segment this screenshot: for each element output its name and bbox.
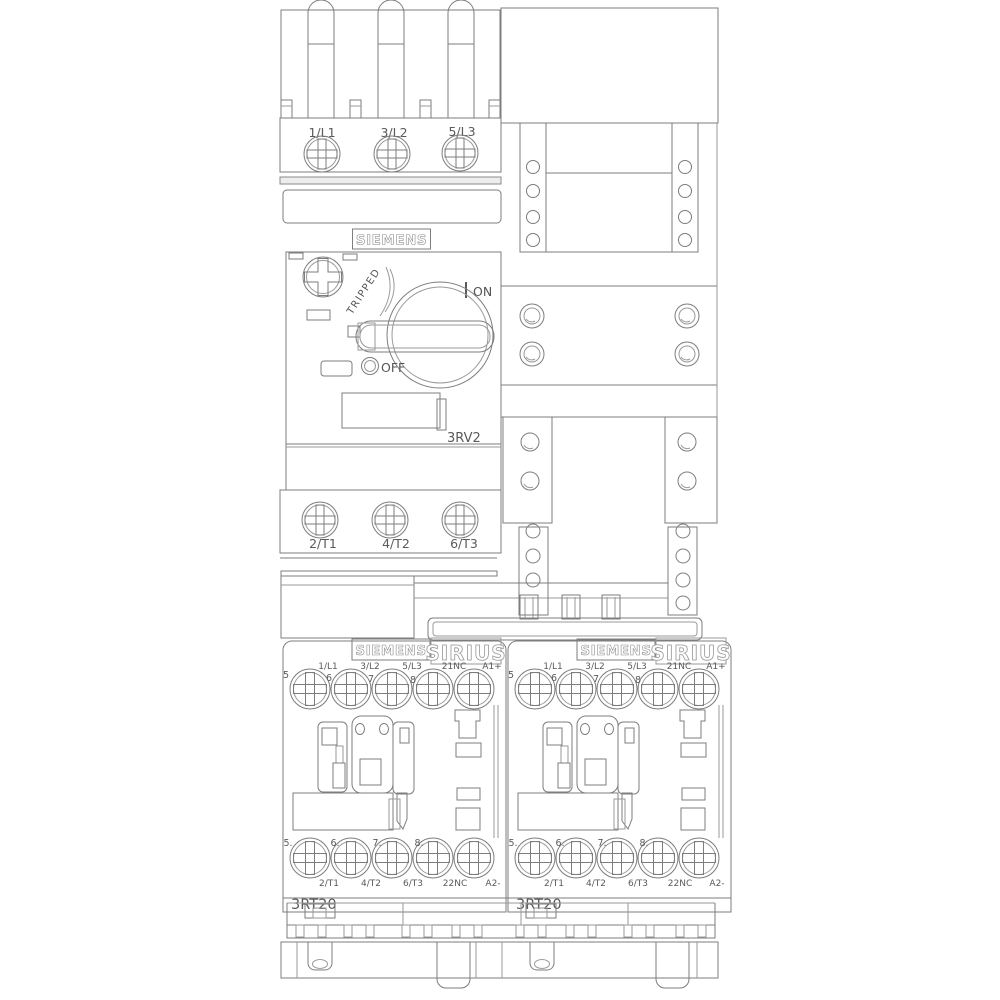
- position-marker: 5.: [508, 838, 517, 849]
- terminal-label: 2/T1: [544, 879, 564, 889]
- terminal-label-1l1: 1/L1: [308, 125, 335, 140]
- terminal-screw: [302, 502, 338, 538]
- position-marker: 8: [635, 675, 641, 686]
- terminal-screw: [372, 502, 408, 538]
- position-marker: 7: [593, 674, 599, 685]
- breaker-brand-plate: SIEMENS: [353, 229, 431, 249]
- circuit-breaker-3rv2: 1/L1 3/L2 5/L3 SIEMENS: [280, 0, 501, 558]
- terminal-label: 4/T2: [361, 879, 381, 889]
- tripped-marking: TRIPPED: [345, 267, 394, 318]
- terminal-label: 3/L2: [360, 662, 380, 672]
- position-marker: 8: [410, 675, 416, 686]
- terminal-screw: [304, 136, 340, 172]
- terminal-label-4t2: 4/T2: [382, 536, 410, 551]
- contactor-model-text: 3RT20: [516, 897, 562, 913]
- contactor-right-3rt20: SIEMENS SIRIUS 1/L1 3/L2 5/L3 21NC A1+ 5…: [508, 641, 732, 913]
- terminal-label: 5/L3: [627, 662, 647, 672]
- cover-screw: [303, 257, 343, 297]
- on-marking: ON: [466, 282, 492, 299]
- contactor-brand-text: SIEMENS: [580, 643, 651, 659]
- contactor-right-body: [508, 638, 731, 912]
- off-marking: OFF: [362, 358, 406, 376]
- terminal-label: 22NC: [668, 879, 692, 889]
- terminal-label-2t1: 2/T1: [309, 536, 337, 551]
- mounting-foot: [437, 942, 470, 988]
- position-marker: 8.: [639, 838, 648, 849]
- position-marker: 6.: [555, 838, 564, 849]
- mounting-foot: [308, 942, 332, 970]
- tripped-text: TRIPPED: [345, 267, 383, 318]
- position-marker: 7: [368, 674, 374, 685]
- terminal-label: A2-: [485, 879, 500, 889]
- terminal-screw: [374, 136, 410, 172]
- terminal-label: 21NC: [442, 662, 466, 672]
- starter-assembly-drawing: 1/L1 3/L2 5/L3 SIEMENS: [0, 0, 1000, 1000]
- terminal-label: 5/L3: [402, 662, 422, 672]
- position-marker: 5: [508, 670, 514, 681]
- terminal-label: 2/T1: [319, 879, 339, 889]
- breaker-front-face: TRIPPED ON OFF: [286, 252, 501, 490]
- contactor-brand-text: SIEMENS: [355, 643, 426, 659]
- terminal-label: 6/T3: [628, 879, 648, 889]
- contactor-left-3rt20: SIEMENS SIRIUS 1/L1 3/L2 5/L3 21NC A1+ 5…: [283, 641, 507, 913]
- terminal-screw: [442, 502, 478, 538]
- mounting-plate: [501, 8, 718, 615]
- on-text: ON: [473, 284, 492, 299]
- position-marker: 6.: [330, 838, 339, 849]
- terminal-label: 4/T2: [586, 879, 606, 889]
- terminal-label: 1/L1: [543, 662, 563, 672]
- position-marker: 7.: [372, 838, 381, 849]
- position-marker: 6: [326, 673, 332, 684]
- position-marker: 5: [283, 670, 289, 681]
- terminal-screw: [442, 135, 478, 171]
- mounting-foot: [656, 942, 689, 988]
- position-marker: 5.: [283, 838, 292, 849]
- breaker-line-terminals: 1/L1 3/L2 5/L3: [280, 118, 501, 223]
- terminal-label: 3/L2: [585, 662, 605, 672]
- terminal-label: 1/L1: [318, 662, 338, 672]
- breaker-brand-text: SIEMENS: [356, 233, 427, 249]
- contactor-left-body: [283, 638, 506, 912]
- breaker-top-pins: [281, 0, 500, 118]
- mounting-foot: [530, 942, 554, 970]
- position-marker: 6: [551, 673, 557, 684]
- terminal-label: 22NC: [443, 879, 467, 889]
- rating-plate: 3RV2: [342, 393, 481, 446]
- terminal-label: A1+: [706, 662, 725, 672]
- terminal-label: A2-: [709, 879, 724, 889]
- contactor-model-text: 3RT20: [291, 897, 337, 913]
- terminal-label: 21NC: [667, 662, 691, 672]
- link-module: [281, 571, 702, 640]
- terminal-label: 6/T3: [403, 879, 423, 889]
- terminal-label: A1+: [482, 662, 501, 672]
- position-marker: 8.: [414, 838, 423, 849]
- position-marker: 7.: [597, 838, 606, 849]
- off-text: OFF: [381, 360, 405, 375]
- breaker-load-terminals: 2/T1 4/T2 6/T3: [280, 490, 501, 558]
- product-drawing: 1/L1 3/L2 5/L3 SIEMENS: [0, 0, 1000, 1000]
- terminal-label-6t3: 6/T3: [450, 536, 478, 551]
